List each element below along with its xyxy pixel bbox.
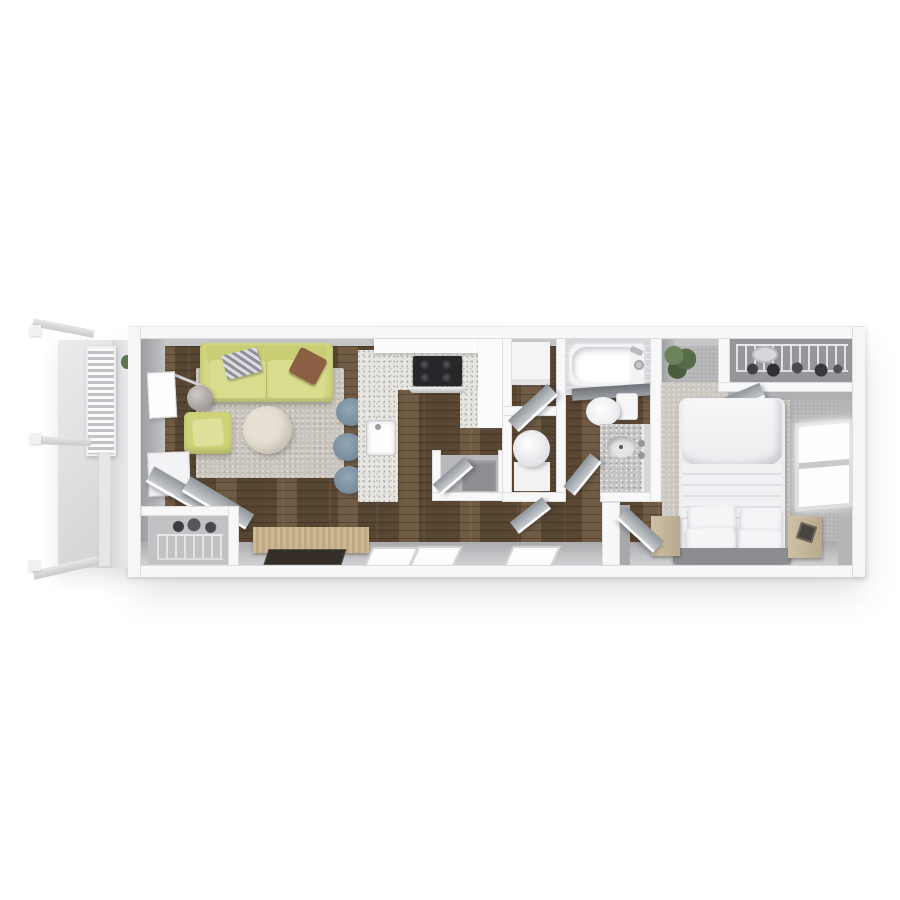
railing-cap-bottom	[29, 560, 40, 571]
bedroom-window-pane-top	[799, 423, 849, 463]
entry-closet-wire-rack	[157, 534, 223, 560]
bathtub-basin	[572, 347, 632, 383]
stove-burner-1	[420, 360, 429, 369]
floor-plan-stage	[0, 0, 900, 900]
stove-burner-3	[420, 373, 429, 382]
bedroom-window-pane-bottom	[799, 465, 849, 507]
entry-closet-shoes	[168, 518, 220, 535]
wall-bedroom-west-stub	[602, 502, 620, 566]
bedroom-window	[795, 418, 853, 511]
floor-lamp-shade	[187, 385, 213, 411]
closet-hanging-items	[740, 358, 844, 380]
kitchen-counter-east	[460, 388, 478, 428]
railing-cap-top	[30, 325, 41, 336]
toilet-bowl	[586, 397, 620, 426]
entry-closet-wall-right	[228, 506, 239, 566]
kitchen-sink	[366, 420, 396, 456]
wall-utility-south	[502, 492, 566, 502]
wall-art-upper	[147, 371, 177, 418]
outer-wall-left	[128, 327, 141, 577]
oven-handle	[410, 387, 465, 393]
outer-wall-top	[128, 327, 865, 339]
kitchen-faucet	[375, 424, 381, 430]
stove-burner-2	[442, 360, 451, 369]
balcony-post	[98, 452, 110, 566]
bedroom-plant	[662, 342, 696, 380]
railing-mid-rail	[33, 436, 91, 446]
entry-closet-wall-top	[141, 506, 238, 516]
outer-wall-bottom	[128, 565, 865, 577]
tub-handle	[634, 360, 644, 370]
wall-utility-bathroom	[556, 327, 566, 502]
tv-panel	[263, 549, 346, 565]
south-window-2	[409, 546, 462, 567]
closet-basket	[752, 346, 778, 363]
round-coffee-table	[243, 406, 292, 454]
vanity-drain	[619, 445, 623, 449]
laundry-appliance	[512, 342, 550, 385]
bed-duvet-top	[682, 398, 782, 470]
wall-bedroom-west-upper	[650, 327, 662, 502]
railing-top-rail	[32, 318, 94, 338]
railing-cap-mid	[30, 433, 41, 444]
vanity-faucet-handles	[638, 440, 645, 447]
outer-wall-right	[852, 327, 865, 577]
stove-burner-4	[442, 373, 451, 382]
water-heater-tank	[513, 430, 550, 467]
bed-headboard	[673, 548, 791, 564]
armchair-cushion	[192, 418, 224, 447]
